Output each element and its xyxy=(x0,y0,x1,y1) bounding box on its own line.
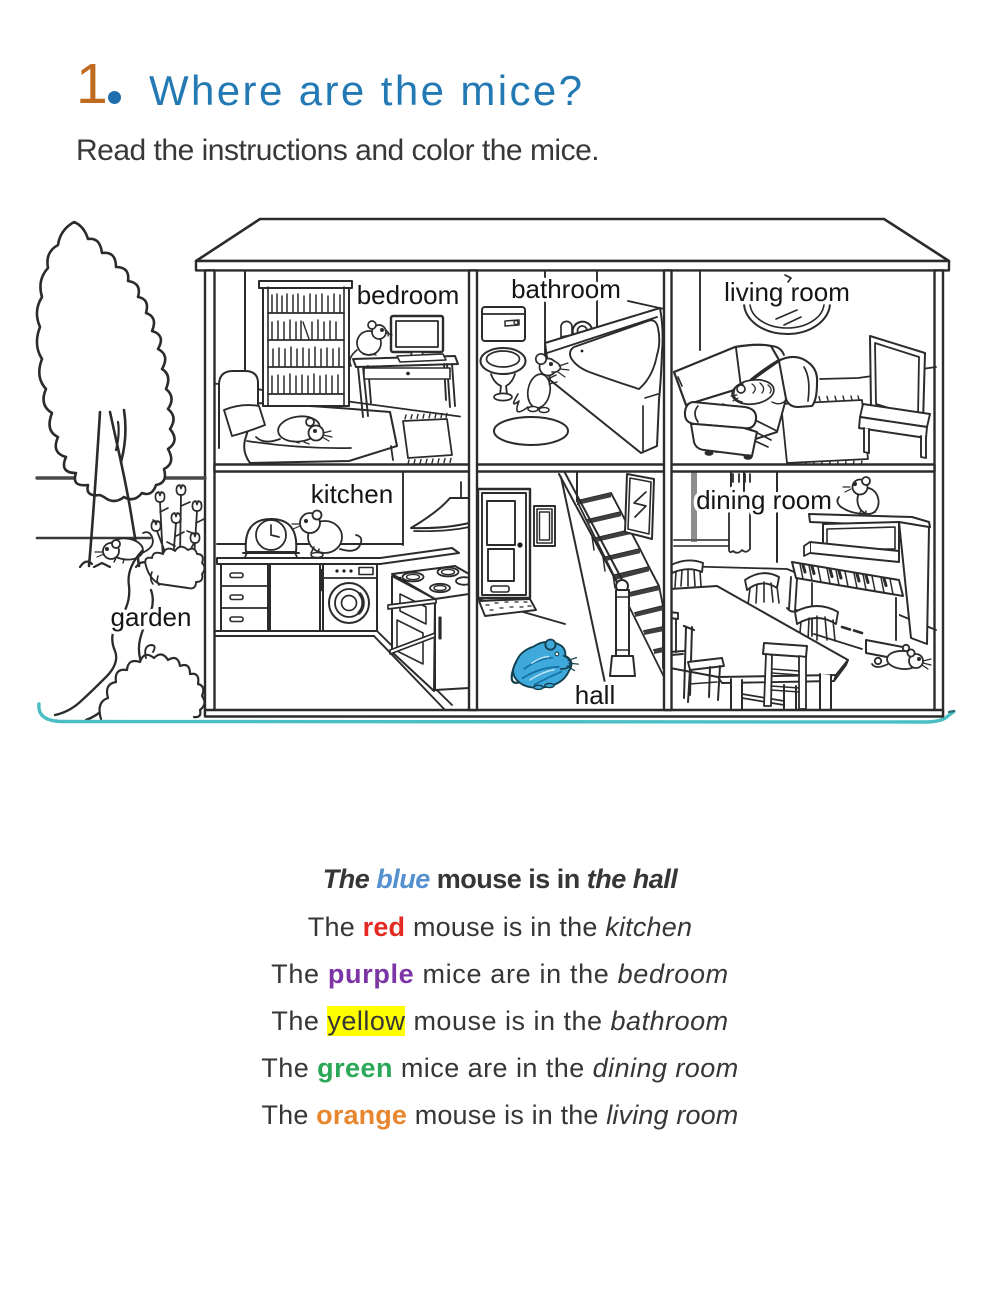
svg-text:dining room: dining room xyxy=(696,485,832,515)
svg-text:kitchen: kitchen xyxy=(311,479,393,509)
svg-text:living room: living room xyxy=(724,277,850,307)
svg-text:garden: garden xyxy=(111,602,192,632)
svg-text:bedroom: bedroom xyxy=(357,280,460,310)
svg-text:bathroom: bathroom xyxy=(511,274,621,304)
svg-text:hall: hall xyxy=(575,680,615,710)
